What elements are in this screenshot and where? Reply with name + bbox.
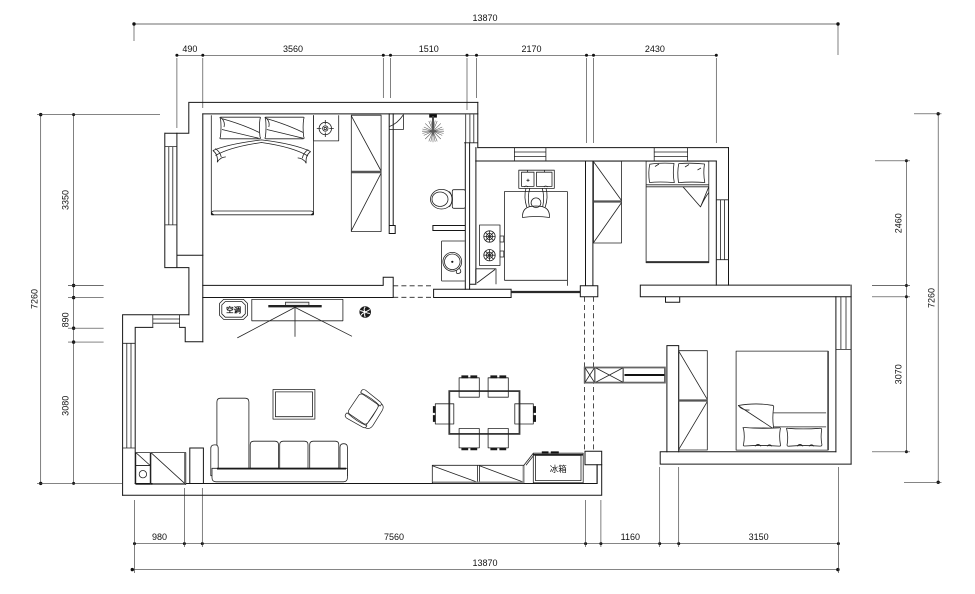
svg-text:冰箱: 冰箱: [550, 464, 568, 474]
svg-text:490: 490: [182, 44, 197, 54]
svg-text:1510: 1510: [419, 44, 439, 54]
svg-text:13870: 13870: [472, 13, 497, 23]
svg-text:13870: 13870: [472, 558, 497, 568]
svg-text:3350: 3350: [61, 190, 71, 210]
svg-text:890: 890: [61, 312, 71, 327]
svg-text:3150: 3150: [749, 532, 769, 542]
svg-text:7260: 7260: [30, 289, 40, 309]
svg-text:2460: 2460: [894, 213, 904, 233]
svg-text:3070: 3070: [894, 364, 904, 384]
svg-text:1160: 1160: [621, 532, 640, 542]
svg-text:2170: 2170: [521, 44, 541, 54]
svg-text:2430: 2430: [645, 44, 665, 54]
svg-text:7560: 7560: [384, 532, 404, 542]
svg-text:980: 980: [152, 532, 167, 542]
svg-text:空调: 空调: [226, 304, 241, 314]
svg-text:3560: 3560: [283, 44, 303, 54]
svg-text:3080: 3080: [61, 396, 71, 416]
svg-text:7260: 7260: [927, 288, 937, 308]
